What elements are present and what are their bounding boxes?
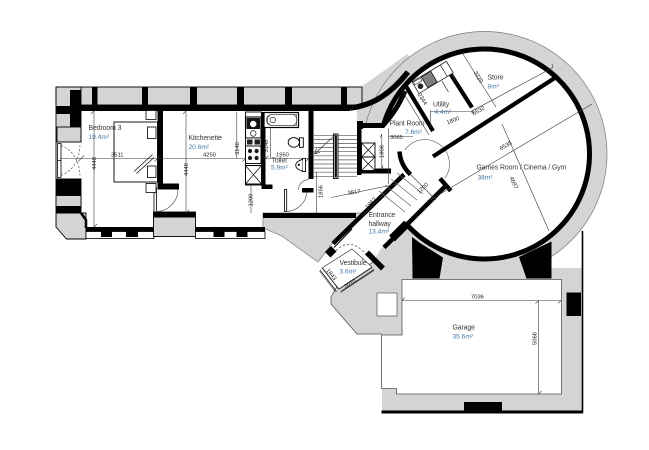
svg-text:Games Room / Cinema / Gym: Games Room / Cinema / Gym	[477, 165, 567, 172]
svg-text:7.6m²: 7.6m²	[405, 129, 423, 136]
svg-text:Entrance: Entrance	[369, 212, 396, 219]
svg-text:Garage: Garage	[453, 325, 476, 332]
svg-text:5.9m²: 5.9m²	[271, 165, 289, 172]
svg-text:19.4m²: 19.4m²	[89, 134, 110, 141]
svg-text:3148: 3148	[235, 142, 241, 155]
svg-text:13.4m²: 13.4m²	[369, 229, 390, 236]
svg-text:20.6m²: 20.6m²	[189, 144, 210, 151]
svg-text:Vestibule: Vestibule	[340, 260, 367, 267]
svg-text:3511: 3511	[111, 153, 123, 159]
svg-text:Toilet: Toilet	[272, 158, 288, 165]
svg-text:hallway: hallway	[369, 221, 392, 228]
svg-text:35.6m²: 35.6m²	[453, 334, 474, 341]
svg-text:3065: 3065	[390, 135, 403, 141]
svg-text:5066: 5066	[533, 332, 539, 345]
svg-text:Bedroom 3: Bedroom 3	[89, 125, 122, 132]
svg-text:4448: 4448	[184, 163, 190, 176]
svg-text:Utility: Utility	[433, 102, 450, 109]
svg-text:4448: 4448	[92, 157, 98, 170]
svg-text:Plant Room: Plant Room	[390, 121, 425, 128]
svg-text:38m²: 38m²	[478, 175, 494, 182]
svg-text:4250: 4250	[203, 153, 216, 159]
svg-text:Store: Store	[488, 75, 504, 82]
svg-text:4.4m²: 4.4m²	[435, 109, 453, 116]
svg-text:3148: 3148	[264, 140, 270, 153]
svg-text:Kitchenette: Kitchenette	[189, 135, 223, 142]
svg-text:1808: 1808	[380, 145, 386, 158]
svg-text:7036: 7036	[471, 295, 484, 301]
svg-text:8m²: 8m²	[488, 84, 500, 91]
svg-text:1200: 1200	[249, 194, 255, 207]
svg-text:3.6m²: 3.6m²	[340, 269, 358, 276]
svg-text:1856: 1856	[319, 185, 325, 198]
